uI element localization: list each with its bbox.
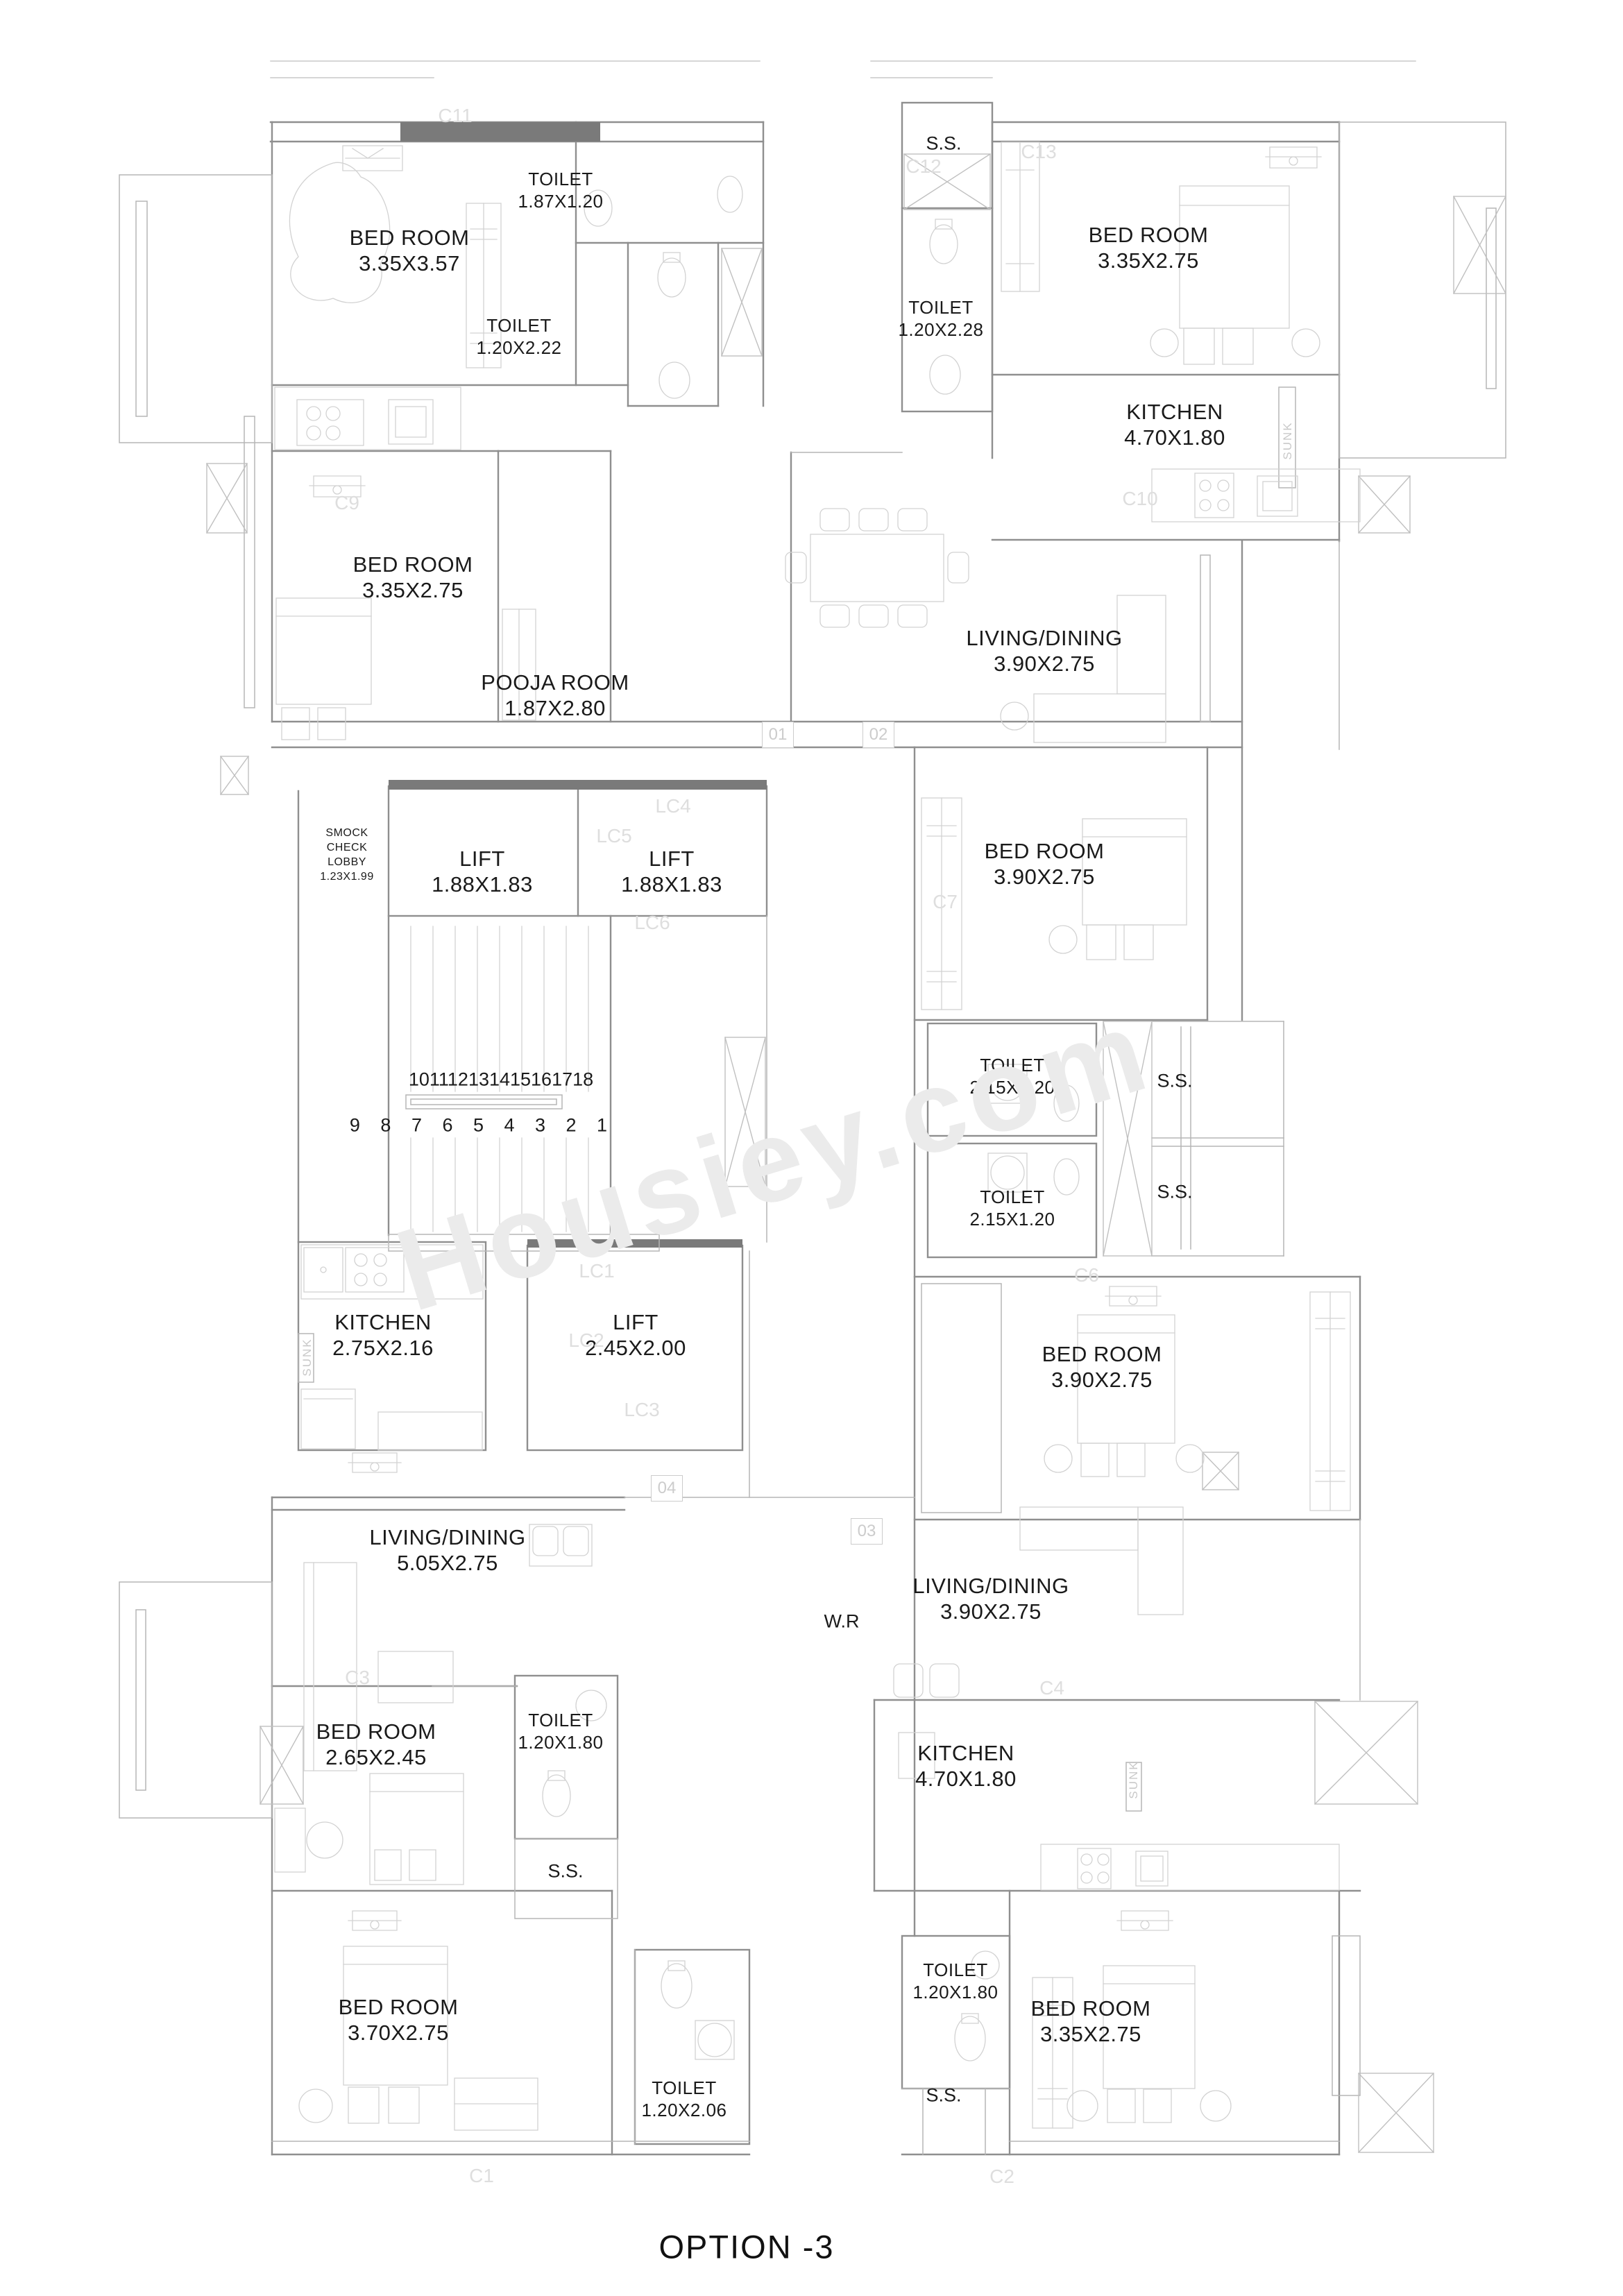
door-marker-02: 02 — [863, 722, 894, 748]
grid-ref-c7: C7 — [933, 891, 958, 913]
room-label-bed-room-25: BED ROOM3.35X2.75 — [1031, 1996, 1151, 2047]
room-label-bed-room-22: BED ROOM3.70X2.75 — [339, 1994, 459, 2046]
ss-label-0: S.S. — [926, 133, 961, 155]
floor-plan-page: BED ROOM3.35X3.57TOILET1.87X1.20TOILET1.… — [0, 0, 1623, 2296]
room-label-bed-room-6: BED ROOM3.35X2.75 — [353, 552, 473, 603]
grid-ref-lc4: LC4 — [655, 795, 690, 817]
ss-label-1: S.S. — [1157, 1071, 1192, 1092]
room-label-bed-room-11: BED ROOM3.90X2.75 — [985, 838, 1105, 890]
sunk-label-0: SUNK — [1281, 421, 1295, 459]
room-label-kitchen-5: KITCHEN4.70X1.80 — [1124, 399, 1225, 450]
room-label-bed-room-4: BED ROOM3.35X2.75 — [1089, 222, 1209, 273]
stair-numbers-lower: 9 8 7 6 5 4 3 2 1 — [350, 1115, 615, 1137]
door-marker-04: 04 — [651, 1475, 683, 1502]
room-label-bed-room-16: BED ROOM3.90X2.75 — [1042, 1341, 1162, 1393]
room-label-lift-10: LIFT1.88X1.83 — [621, 846, 722, 897]
grid-ref-lc5: LC5 — [596, 825, 631, 847]
grid-ref-c4: C4 — [1039, 1677, 1064, 1699]
wr-label: W.R — [824, 1611, 860, 1633]
room-label-smock-check-lobby: SMOCKCHECKLOBBY1.23X1.99 — [320, 826, 373, 884]
room-label-toilet-3: TOILET1.20X2.28 — [898, 296, 983, 341]
door-marker-01: 01 — [762, 722, 794, 748]
room-label-toilet-1: TOILET1.87X1.20 — [518, 168, 603, 212]
grid-ref-lc2: LC2 — [568, 1329, 604, 1352]
room-label-bed-room-19: BED ROOM2.65X2.45 — [316, 1719, 436, 1770]
ss-label-3: S.S. — [547, 1861, 583, 1882]
grid-ref-lc3: LC3 — [624, 1399, 659, 1421]
room-label-toilet-13: TOILET2.15X1.20 — [969, 1186, 1055, 1230]
room-label-toilet-24: TOILET1.20X1.80 — [912, 1959, 998, 2003]
ss-label-2: S.S. — [1157, 1182, 1192, 1203]
ss-label-4: S.S. — [926, 2085, 961, 2107]
sunk-label-1: SUNK — [300, 1338, 314, 1376]
room-label-living-dining-8: LIVING/DINING3.90X2.75 — [966, 625, 1122, 677]
grid-ref-c1: C1 — [469, 2165, 494, 2187]
sunk-label-2: SUNK — [1127, 1760, 1141, 1798]
grid-ref-lc6: LC6 — [634, 912, 670, 934]
grid-ref-c12: C12 — [906, 155, 941, 178]
room-label-living-dining-17: LIVING/DINING5.05X2.75 — [369, 1524, 525, 1576]
room-label-toilet-23: TOILET1.20X2.06 — [641, 2077, 726, 2121]
room-label-living-dining-18: LIVING/DINING3.90X2.75 — [912, 1573, 1069, 1624]
room-label-pooja-room-7: POOJA ROOM1.87X2.80 — [481, 670, 629, 721]
grid-ref-c6: C6 — [1074, 1264, 1099, 1286]
grid-ref-c11: C11 — [438, 105, 472, 127]
plan-title: OPTION -3 — [658, 2228, 834, 2266]
grid-ref-c10: C10 — [1122, 488, 1157, 510]
room-label-lift-9: LIFT1.88X1.83 — [432, 846, 533, 897]
room-label-kitchen-21: KITCHEN4.70X1.80 — [915, 1740, 1017, 1792]
grid-ref-c13: C13 — [1021, 141, 1056, 163]
door-marker-03: 03 — [851, 1518, 883, 1545]
room-label-toilet-2: TOILET1.20X2.22 — [476, 314, 561, 359]
grid-ref-c3: C3 — [345, 1667, 370, 1689]
grid-ref-c2: C2 — [989, 2166, 1014, 2188]
room-label-bed-room-0: BED ROOM3.35X3.57 — [350, 225, 470, 276]
grid-ref-c9: C9 — [334, 492, 359, 514]
stair-numbers-upper: 101112131415161718 — [409, 1069, 593, 1091]
room-label-toilet-20: TOILET1.20X1.80 — [518, 1709, 603, 1753]
